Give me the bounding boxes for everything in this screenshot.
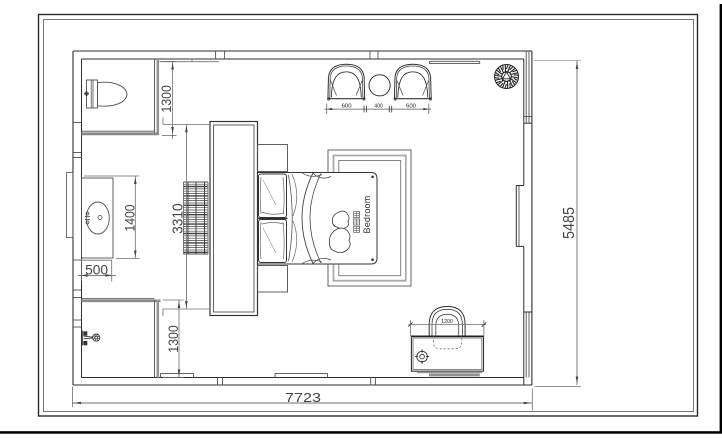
svg-text:1400: 1400: [121, 204, 137, 231]
svg-text:7723: 7723: [285, 390, 321, 405]
svg-text:600: 600: [406, 104, 416, 110]
svg-text:3310: 3310: [170, 203, 187, 234]
svg-text:1300: 1300: [165, 325, 181, 353]
svg-text:Bedroom: Bedroom: [362, 196, 372, 234]
svg-text:400: 400: [374, 104, 383, 110]
svg-text:500: 500: [85, 261, 108, 277]
svg-text:1200: 1200: [441, 319, 453, 325]
svg-text:600: 600: [342, 104, 352, 110]
svg-text:1300: 1300: [158, 85, 174, 113]
svg-text:5485: 5485: [561, 207, 578, 239]
